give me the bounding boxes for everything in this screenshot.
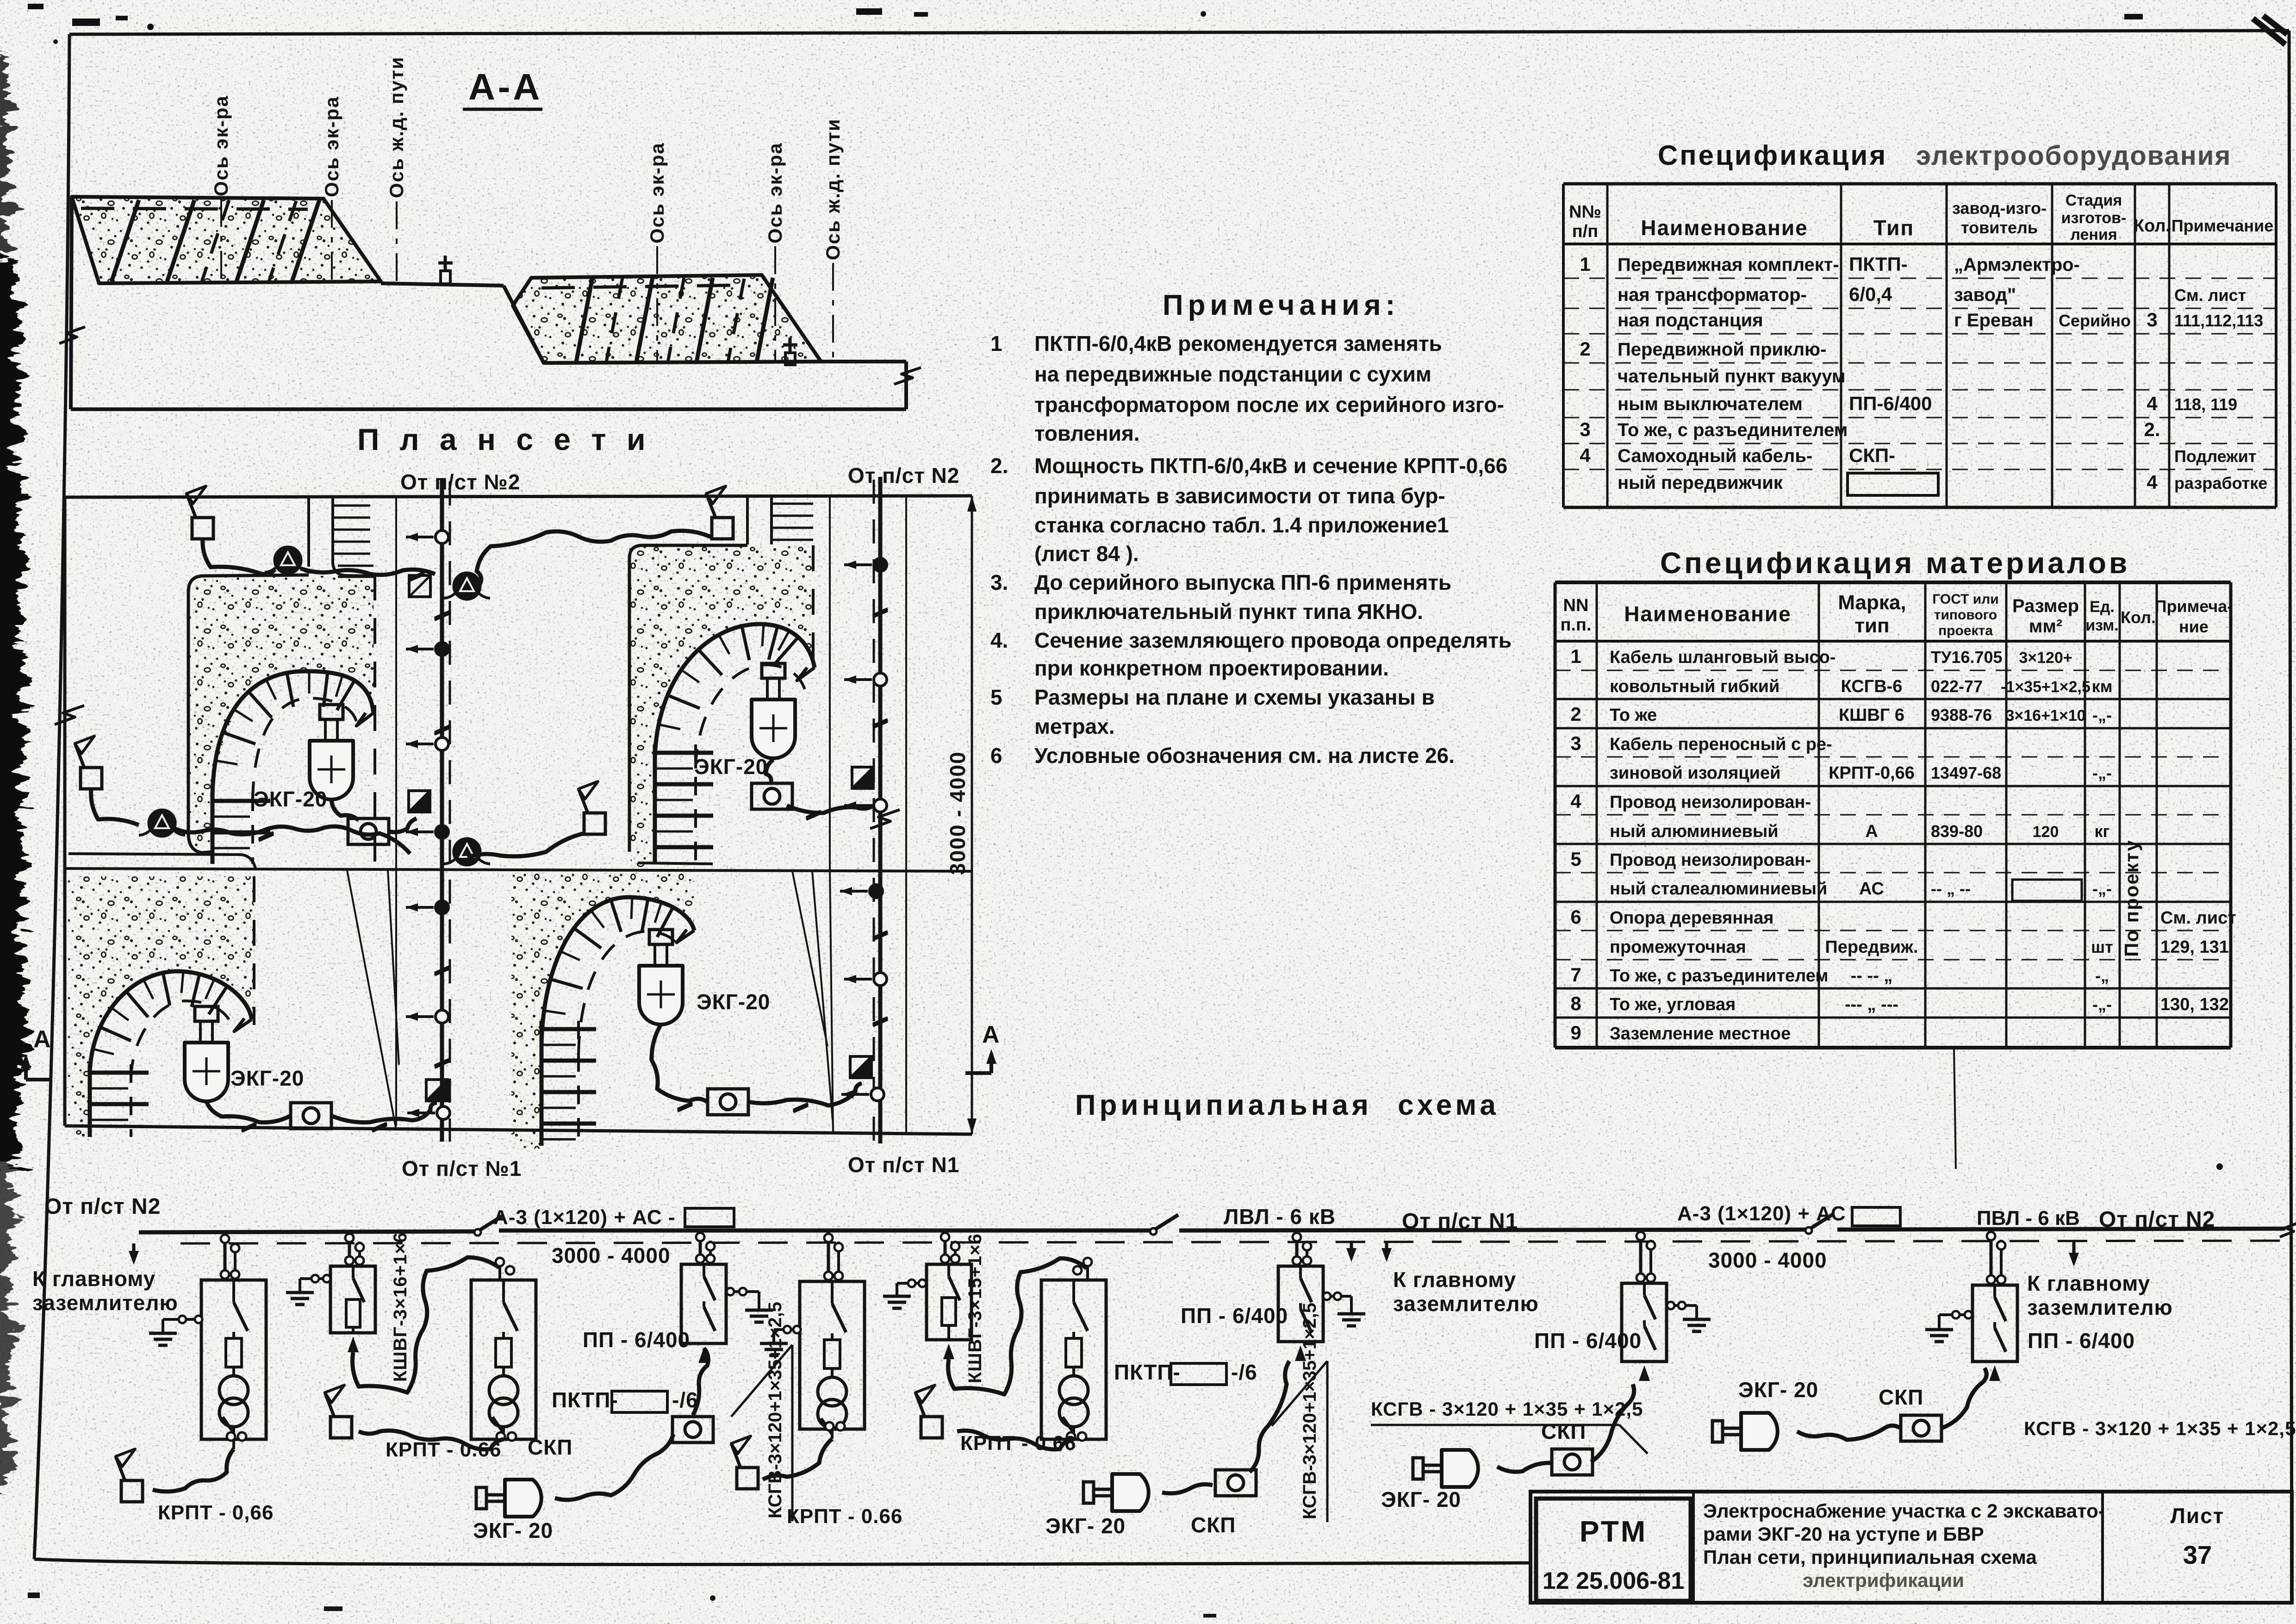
- svg-text:КШВГ 6: КШВГ 6: [1839, 706, 1904, 725]
- svg-text:3.: 3.: [990, 570, 1008, 594]
- svg-text:Примечание: Примечание: [2172, 216, 2274, 235]
- svg-text:ЭКГ-20: ЭКГ-20: [230, 1066, 304, 1090]
- svg-text:станка согласно табл. 1.4 п: станка согласно табл. 1.4 приложение1: [1034, 513, 1449, 537]
- svg-text:завод": завод": [1954, 285, 2016, 305]
- svg-text:Кол.: Кол.: [2121, 608, 2156, 627]
- svg-text:От п/ст N1: От п/ст N1: [1402, 1209, 1518, 1234]
- svg-text:КШВГ-3×15+1×6: КШВГ-3×15+1×6: [965, 1233, 985, 1383]
- svg-text:шт: шт: [2091, 937, 2113, 956]
- svg-text:А: А: [1865, 822, 1878, 841]
- svg-text:2.: 2.: [990, 454, 1008, 478]
- svg-text:К главному: К главному: [1393, 1268, 1516, 1292]
- svg-text:СКП: СКП: [528, 1435, 572, 1459]
- svg-text:ПП-6/400: ПП-6/400: [1849, 393, 1932, 414]
- svg-text:Условные обозначения см. на: Условные обозначения см. на листе 26.: [1034, 743, 1455, 768]
- svg-text:КСГВ - 3×120 + 1×35 + 1×2,5: КСГВ - 3×120 + 1×35 + 1×2,5: [1371, 1398, 1643, 1420]
- svg-text:типового: типового: [1934, 607, 1997, 623]
- svg-text:ления: ления: [2070, 226, 2117, 244]
- svg-text:4: 4: [2147, 393, 2158, 414]
- svg-text:Провод неизолирован-: Провод неизолирован-: [1610, 793, 1811, 812]
- svg-text:ПКТП-6/0,4кВ рекомендуется з: ПКТП-6/0,4кВ рекомендуется заменять: [1034, 331, 1442, 356]
- svg-text:СКП: СКП: [1541, 1419, 1586, 1443]
- svg-text:ГОСТ или: ГОСТ или: [1932, 592, 1998, 607]
- svg-text:ный сталеалюминиевый: ный сталеалюминиевый: [1610, 879, 1827, 899]
- svg-text:13497-68: 13497-68: [1931, 763, 2001, 782]
- svg-text:-1×35+1×2,5: -1×35+1×2,5: [2001, 678, 2091, 696]
- svg-text:Марка,: Марка,: [1838, 591, 1906, 614]
- svg-text:электрификации: электрификации: [1803, 1569, 1964, 1591]
- svg-text:Спецификация материалов: Спецификация материалов: [1660, 546, 2130, 580]
- svg-text:839-80: 839-80: [1931, 822, 1983, 841]
- svg-text:П л а н с е т и: П л а н с е т и: [357, 422, 648, 456]
- svg-text:Ось эк-ра: Ось эк-ра: [210, 95, 232, 196]
- svg-text:5: 5: [1570, 848, 1581, 870]
- svg-text:118, 119: 118, 119: [2174, 395, 2237, 414]
- svg-text:3000 - 4000: 3000 - 4000: [946, 751, 970, 875]
- svg-text:От п/ст N2: От п/ст N2: [2099, 1207, 2215, 1232]
- svg-text:От п/ст N2: От п/ст N2: [44, 1194, 161, 1219]
- svg-text:3: 3: [1570, 732, 1581, 754]
- svg-text:4: 4: [1570, 790, 1581, 812]
- svg-text:6/0,4: 6/0,4: [1849, 283, 1892, 305]
- svg-text:ЭКГ- 20: ЭКГ- 20: [1045, 1514, 1126, 1538]
- svg-text:ПП - 6/400: ПП - 6/400: [2028, 1329, 2135, 1353]
- svg-text:КРПТ - 0.66: КРПТ - 0.66: [787, 1505, 902, 1528]
- svg-text:рами ЭКГ-20 на уступе и Б: рами ЭКГ-20 на уступе и БВР: [1703, 1523, 1984, 1545]
- svg-text:Серийно: Серийно: [2059, 311, 2131, 330]
- svg-text:130, 132: 130, 132: [2160, 995, 2229, 1014]
- svg-text:кг: кг: [2094, 822, 2109, 841]
- svg-text:111,112,113: 111,112,113: [2174, 311, 2263, 330]
- svg-text:2: 2: [1580, 338, 1590, 360]
- svg-text:СКП-: СКП-: [1849, 444, 1895, 466]
- svg-text:ЭКГ-20: ЭКГ-20: [694, 755, 768, 779]
- svg-text:Размеры на плане и схемы: Размеры на плане и схемы указаны в: [1034, 685, 1435, 709]
- svg-text:От п/ст №2: От п/ст №2: [400, 470, 520, 494]
- svg-text:метрах.: метрах.: [1034, 714, 1115, 738]
- svg-text:-- „ --: -- „ --: [1931, 879, 1971, 898]
- svg-text:ЭКГ-20: ЭКГ-20: [254, 787, 327, 811]
- svg-text:-/6: -/6: [1231, 1360, 1257, 1384]
- svg-text:(лист 84 ).: (лист 84 ).: [1034, 542, 1139, 566]
- svg-text:ние: ние: [2179, 617, 2209, 636]
- svg-text:при конкретном проектировани: при конкретном проектировании.: [1034, 656, 1389, 680]
- svg-text:6: 6: [1570, 906, 1581, 928]
- svg-text:тип: тип: [1854, 614, 1889, 637]
- svg-text:на передвижные подстанции с: на передвижные подстанции с сухим: [1034, 362, 1431, 386]
- svg-text:37: 37: [2183, 1540, 2212, 1569]
- svg-text:--- „ ---: --- „ ---: [1845, 995, 1898, 1014]
- svg-text:Кабель переносный с ре-: Кабель переносный с ре-: [1610, 735, 1832, 754]
- svg-text:ЛВЛ - 6 кВ: ЛВЛ - 6 кВ: [1224, 1205, 1336, 1229]
- svg-text:-„-: -„-: [2092, 879, 2112, 898]
- svg-text:Кабель шланговый высо-: Кабель шланговый высо-: [1610, 648, 1836, 667]
- svg-text:разработке: разработке: [2174, 474, 2267, 493]
- svg-text:12 25.006-81: 12 25.006-81: [1543, 1568, 1685, 1594]
- svg-text:трансформатором после их сери: трансформатором после их серийного изго-: [1034, 393, 1504, 417]
- svg-text:КРПТ - 0.66: КРПТ - 0.66: [960, 1432, 1076, 1455]
- svg-text:Передвижной приклю-: Передвижной приклю-: [1618, 339, 1826, 360]
- svg-text:Самоходный кабель-: Самоходный кабель-: [1618, 446, 1812, 466]
- svg-text:проекта: проекта: [1938, 623, 1993, 638]
- svg-text:-„-: -„-: [2092, 995, 2112, 1014]
- svg-text:4: 4: [2147, 471, 2158, 493]
- svg-text:ЭКГ- 20: ЭКГ- 20: [1381, 1487, 1461, 1512]
- svg-text:принимать в зависимости от: принимать в зависимости от типа бур-: [1034, 484, 1445, 508]
- svg-text:ная трансформатор-: ная трансформатор-: [1618, 285, 1807, 305]
- svg-text:заземлителю: заземлителю: [32, 1291, 178, 1315]
- svg-text:1: 1: [1580, 253, 1590, 275]
- svg-text:Ось эк-ра: Ось эк-ра: [321, 96, 342, 197]
- svg-text:ЭКГ-20: ЭКГ-20: [697, 990, 770, 1014]
- svg-text:завод-изго-: завод-изго-: [1952, 199, 2047, 218]
- svg-text:ная подстанция: ная подстанция: [1618, 310, 1763, 331]
- svg-text:чательный пункт вакуум: чательный пункт вакуум: [1618, 366, 1846, 387]
- svg-text:п/п: п/п: [1572, 222, 1598, 241]
- svg-text:Примечания:: Примечания:: [1163, 289, 1400, 321]
- svg-text:КШВГ-3×16+1×6: КШВГ-3×16+1×6: [390, 1232, 411, 1382]
- svg-text:КРПТ - 0.66: КРПТ - 0.66: [386, 1438, 501, 1461]
- svg-text:ПВЛ - 6 кВ: ПВЛ - 6 кВ: [1977, 1207, 2080, 1230]
- svg-text:-- -- „: -- -- „: [1851, 966, 1893, 986]
- svg-text:Ось эк-ра: Ось эк-ра: [646, 142, 668, 244]
- svg-text:Ед.: Ед.: [2090, 598, 2115, 616]
- svg-text:3: 3: [2147, 309, 2157, 331]
- svg-text:2: 2: [1570, 703, 1581, 725]
- svg-text:Передвижная комплект-: Передвижная комплект-: [1618, 255, 1839, 275]
- svg-text:1: 1: [990, 331, 1002, 356]
- svg-text:ТУ16.705: ТУ16.705: [1931, 648, 2003, 667]
- svg-text:г Ереван: г Ереван: [1954, 310, 2034, 331]
- svg-text:Наименование: Наименование: [1641, 216, 1808, 240]
- svg-text:120: 120: [2033, 823, 2059, 841]
- svg-text:А-3 (1×120) + АС: А-3 (1×120) + АС: [1677, 1202, 1846, 1225]
- svg-text:ПКТП-: ПКТП-: [1849, 253, 1908, 275]
- svg-text:Передвиж.: Передвиж.: [1825, 937, 1918, 957]
- svg-text:См. лист: См. лист: [2174, 286, 2246, 305]
- svg-text:СКП: СКП: [1879, 1385, 1923, 1409]
- svg-text:4.: 4.: [990, 628, 1008, 652]
- svg-text:3×120+: 3×120+: [2019, 649, 2072, 667]
- svg-text:КСГВ-6: КСГВ-6: [1841, 677, 1903, 696]
- svg-text:К главному: К главному: [32, 1267, 156, 1291]
- svg-text:ный передвижчик: ный передвижчик: [1618, 473, 1783, 493]
- svg-text:Провод неизолирован-: Провод неизолирован-: [1610, 850, 1811, 870]
- svg-text:8: 8: [1570, 993, 1581, 1014]
- svg-text:„Армэлектро-: „Армэлектро-: [1954, 255, 2080, 275]
- svg-text:зиновой изоляцией: зиновой изоляцией: [1610, 763, 1781, 783]
- svg-text:заземлителю: заземлителю: [1393, 1292, 1539, 1316]
- svg-text:КСГВ-3×120+1×35+1×2,5: КСГВ-3×120+1×35+1×2,5: [1300, 1303, 1320, 1519]
- svg-text:КРПТ - 0,66: КРПТ - 0,66: [158, 1501, 274, 1524]
- svg-text:То же, угловая: То же, угловая: [1610, 995, 1736, 1014]
- svg-text:3000 - 4000: 3000 - 4000: [552, 1243, 671, 1268]
- svg-text:1: 1: [1570, 645, 1581, 667]
- svg-text:мм²: мм²: [2029, 616, 2063, 637]
- svg-text:Мощность ПКТП-6/0,4кВ и сечени: Мощность ПКТП-6/0,4кВ и сечение КРПТ-0,6…: [1034, 454, 1507, 478]
- svg-text:7: 7: [1570, 964, 1581, 986]
- svg-text:9: 9: [1570, 1022, 1581, 1043]
- svg-text:План сети, принципиальная сх: План сети, принципиальная схема: [1703, 1546, 2037, 1568]
- svg-text:Кол.: Кол.: [2134, 216, 2171, 236]
- svg-text:изготов-: изготов-: [2061, 209, 2127, 227]
- svg-text:6: 6: [990, 743, 1002, 768]
- svg-text:129, 131: 129, 131: [2160, 937, 2229, 957]
- svg-text:До серийного выпуска ПП-6: До серийного выпуска ПП-6 применять: [1034, 570, 1451, 594]
- svg-text:Размер: Размер: [2012, 596, 2079, 616]
- svg-text:По проекту: По проекту: [2121, 839, 2142, 957]
- svg-text:Стадия: Стадия: [2066, 192, 2122, 209]
- svg-text:А-3 (1×120) + АС -: А-3 (1×120) + АС -: [493, 1206, 675, 1229]
- svg-text:Принципиальная схема: Принципиальная схема: [1075, 1089, 1500, 1121]
- svg-text:9388-76: 9388-76: [1931, 706, 1992, 725]
- svg-text:ковольтный гибкий: ковольтный гибкий: [1610, 677, 1780, 696]
- svg-text:3×16+1×10: 3×16+1×10: [2005, 707, 2085, 725]
- svg-text:ЭКГ- 20: ЭКГ- 20: [1738, 1378, 1818, 1402]
- svg-text:То же, с разъединителем: То же, с разъединителем: [1618, 420, 1848, 440]
- svg-text:А-А: А-А: [468, 66, 542, 107]
- svg-text:ным выключателем: ным выключателем: [1618, 394, 1803, 414]
- svg-text:Сечение заземляющего провода: Сечение заземляющего провода определять: [1034, 628, 1512, 652]
- svg-text:Ось ж.д. пути: Ось ж.д. пути: [822, 118, 844, 260]
- svg-text:Опора деревянная: Опора деревянная: [1610, 908, 1773, 928]
- svg-text:Ось ж.д. пути: Ось ж.д. пути: [386, 56, 407, 198]
- svg-text:приключательный пункт типа: приключательный пункт типа ЯКНО.: [1034, 600, 1423, 624]
- svg-text:Подлежит: Подлежит: [2174, 447, 2256, 466]
- svg-text:А: А: [982, 1021, 1000, 1048]
- svg-text:-„: -„: [2095, 966, 2109, 985]
- svg-text:От п/ст №1: От п/ст №1: [402, 1156, 522, 1181]
- svg-text:5: 5: [990, 685, 1002, 709]
- svg-text:То же: То же: [1610, 706, 1657, 725]
- svg-text:От п/ст N2: От п/ст N2: [848, 463, 959, 487]
- svg-text:Ось эк-ра: Ось эк-ра: [764, 142, 786, 244]
- svg-text:-„-: -„-: [2092, 763, 2112, 782]
- svg-text:ЭКГ- 20: ЭКГ- 20: [473, 1518, 553, 1543]
- svg-text:NN: NN: [1563, 596, 1589, 615]
- svg-text:2.: 2.: [2144, 418, 2160, 440]
- svg-text:ный алюминиевый: ный алюминиевый: [1610, 822, 1779, 841]
- svg-text:Заземление местное: Заземление местное: [1610, 1024, 1791, 1043]
- svg-text:Тип: Тип: [1873, 216, 1914, 240]
- svg-text:ПП - 6/400: ПП - 6/400: [1534, 1329, 1642, 1353]
- svg-text:022-77: 022-77: [1931, 677, 1983, 696]
- svg-text:То же, с разъединителем: То же, с разъединителем: [1610, 966, 1828, 986]
- svg-text:Наименование: Наименование: [1624, 602, 1791, 626]
- svg-text:п.п.: п.п.: [1560, 615, 1591, 635]
- svg-text:Электроснабжение участка с 2: Электроснабжение участка с 2 экскавато-: [1703, 1500, 2105, 1522]
- svg-text:товитель: товитель: [1961, 218, 2038, 237]
- svg-text:-„-: -„-: [2092, 706, 2112, 725]
- svg-text:Лист: Лист: [2171, 1504, 2225, 1528]
- svg-text:См. лист: См. лист: [2160, 908, 2236, 928]
- svg-text:заземлителю: заземлителю: [2027, 1295, 2173, 1319]
- svg-text:ПП - 6/400: ПП - 6/400: [1181, 1304, 1288, 1328]
- svg-text:N№: N№: [1569, 202, 1601, 222]
- svg-text:промежуточная: промежуточная: [1610, 937, 1746, 957]
- svg-text:А: А: [33, 1026, 51, 1053]
- svg-text:изм.: изм.: [2085, 617, 2119, 634]
- svg-text:КСГВ - 3×120 + 1×35 + 1×2,5: КСГВ - 3×120 + 1×35 + 1×2,5: [2024, 1418, 2296, 1439]
- svg-text:4: 4: [1580, 444, 1591, 466]
- svg-text:Спецификация: Спецификация: [1658, 140, 1887, 171]
- svg-text:СКП: СКП: [1191, 1513, 1236, 1537]
- svg-text:электрооборудования: электрооборудования: [1916, 141, 2231, 171]
- svg-text:От п/ст N1: От п/ст N1: [848, 1153, 959, 1177]
- svg-text:3: 3: [1580, 418, 1590, 440]
- svg-text:РТМ: РТМ: [1580, 1515, 1647, 1548]
- svg-text:км: км: [2092, 677, 2113, 696]
- svg-text:ПКТП-: ПКТП-: [552, 1388, 618, 1412]
- svg-text:КРПТ-0,66: КРПТ-0,66: [1829, 763, 1915, 783]
- svg-text:АС: АС: [1859, 879, 1884, 899]
- svg-text:3000 - 4000: 3000 - 4000: [1708, 1248, 1827, 1272]
- svg-text:товления.: товления.: [1034, 421, 1140, 445]
- svg-text:К главному: К главному: [2027, 1271, 2150, 1295]
- svg-text:ПП - 6/400: ПП - 6/400: [583, 1328, 690, 1352]
- svg-text:Примеча-: Примеча-: [2155, 597, 2233, 616]
